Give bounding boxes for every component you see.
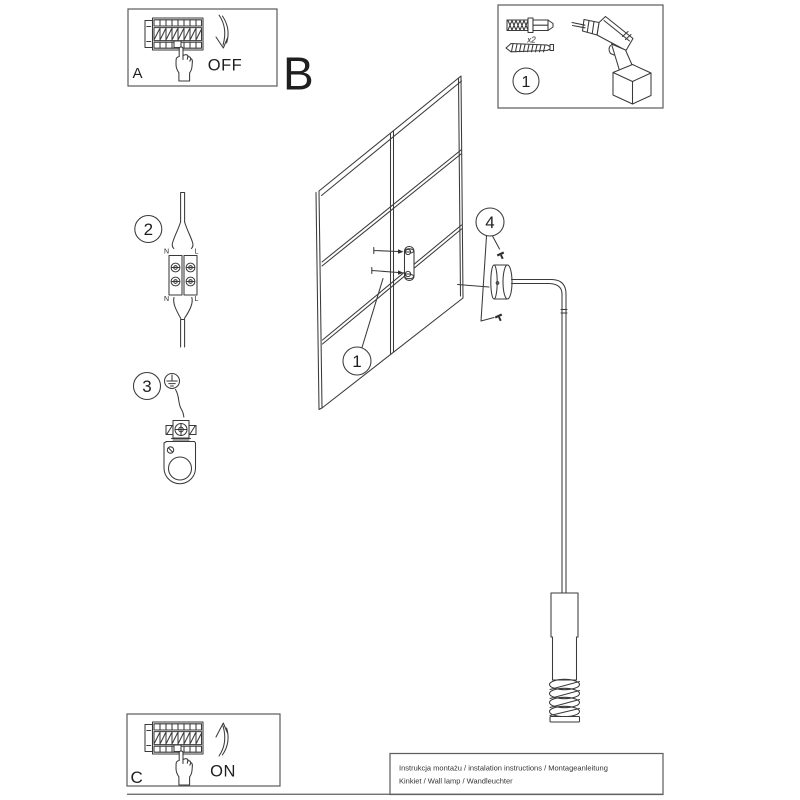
pointing-hand-icon (176, 47, 192, 81)
drill-icon (572, 17, 651, 105)
ground-terminal (166, 421, 196, 441)
svg-text:3: 3 (142, 377, 151, 396)
instruction-sheet: OFF A B x2 1 (0, 0, 800, 800)
wire-n-label-bottom: N (164, 296, 169, 303)
split-wires-bottom (174, 298, 193, 319)
lamp-rod (561, 294, 567, 593)
marker-1-leader (362, 279, 383, 348)
lamp-screw-bottom (495, 313, 504, 322)
pointing-hand-icon (176, 751, 192, 785)
wall-rail-1 (322, 150, 461, 266)
panel-a-box: OFF A (128, 9, 277, 86)
kit-step-marker: 1 (513, 68, 539, 94)
wire-l-label-top: L (195, 249, 199, 256)
step2-marker: 2 (135, 216, 162, 243)
lamp-canopy (491, 265, 512, 299)
svg-text:1: 1 (352, 352, 361, 371)
wire-n-label-top: N (164, 249, 169, 256)
mains-cable-top (181, 193, 185, 223)
kit-box: x2 1 (498, 5, 663, 108)
wire-l-label-bottom: L (195, 296, 199, 303)
ground-symbol-icon (165, 374, 180, 389)
panel-c-label: C (131, 768, 143, 787)
lamp-spring (550, 679, 580, 716)
step2-wiring: 2 N L N L (135, 193, 199, 348)
panel-a-label: A (133, 65, 143, 82)
lamp-bottom-disc (550, 717, 580, 723)
canopy-wall-leader (458, 285, 490, 288)
ground-wire (176, 390, 184, 418)
wall-grid (316, 76, 463, 410)
panel-c-box: ON C (127, 714, 280, 787)
lamp-arm (512, 280, 567, 295)
diagram-svg: OFF A B x2 1 (0, 0, 800, 800)
section-b-label: B (283, 48, 314, 100)
lamp-screw-top (497, 251, 506, 260)
footer: Instrukcja montażu / instalation instruc… (127, 754, 663, 795)
on-label: ON (210, 763, 236, 781)
wall-anchor-icon (507, 18, 553, 33)
wall-mounting: 1 (343, 247, 414, 376)
mounting-bracket-icon (164, 442, 196, 484)
lamp-shade (551, 593, 578, 680)
on-arrow-icon (216, 723, 228, 756)
breaker-panel-icon (145, 18, 203, 50)
svg-text:2: 2 (144, 220, 153, 239)
wall-divider (391, 131, 394, 354)
footer-line1: Instrukcja montażu / instalation instruc… (399, 764, 608, 773)
wall-lamp: 4 (458, 208, 580, 722)
mains-cable-bottom (181, 320, 185, 348)
breaker-panel-icon (145, 722, 203, 754)
off-label: OFF (208, 57, 243, 75)
step3-grounding: 3 (134, 373, 197, 484)
svg-text:1: 1 (522, 74, 531, 91)
step3-marker: 3 (134, 373, 161, 400)
mounting-screw-icon (506, 44, 554, 52)
wall-step-marker: 1 (343, 279, 383, 376)
anchor-qty-label: x2 (526, 36, 536, 45)
off-arrow-icon (216, 15, 228, 48)
terminal-connector-icon (169, 256, 197, 296)
split-wires-top (172, 222, 193, 249)
svg-text:4: 4 (485, 213, 494, 232)
wall-rail-2 (323, 225, 462, 344)
footer-box (390, 754, 663, 795)
footer-line2: Kinkiet / Wall lamp / Wandleuchter (399, 777, 513, 786)
